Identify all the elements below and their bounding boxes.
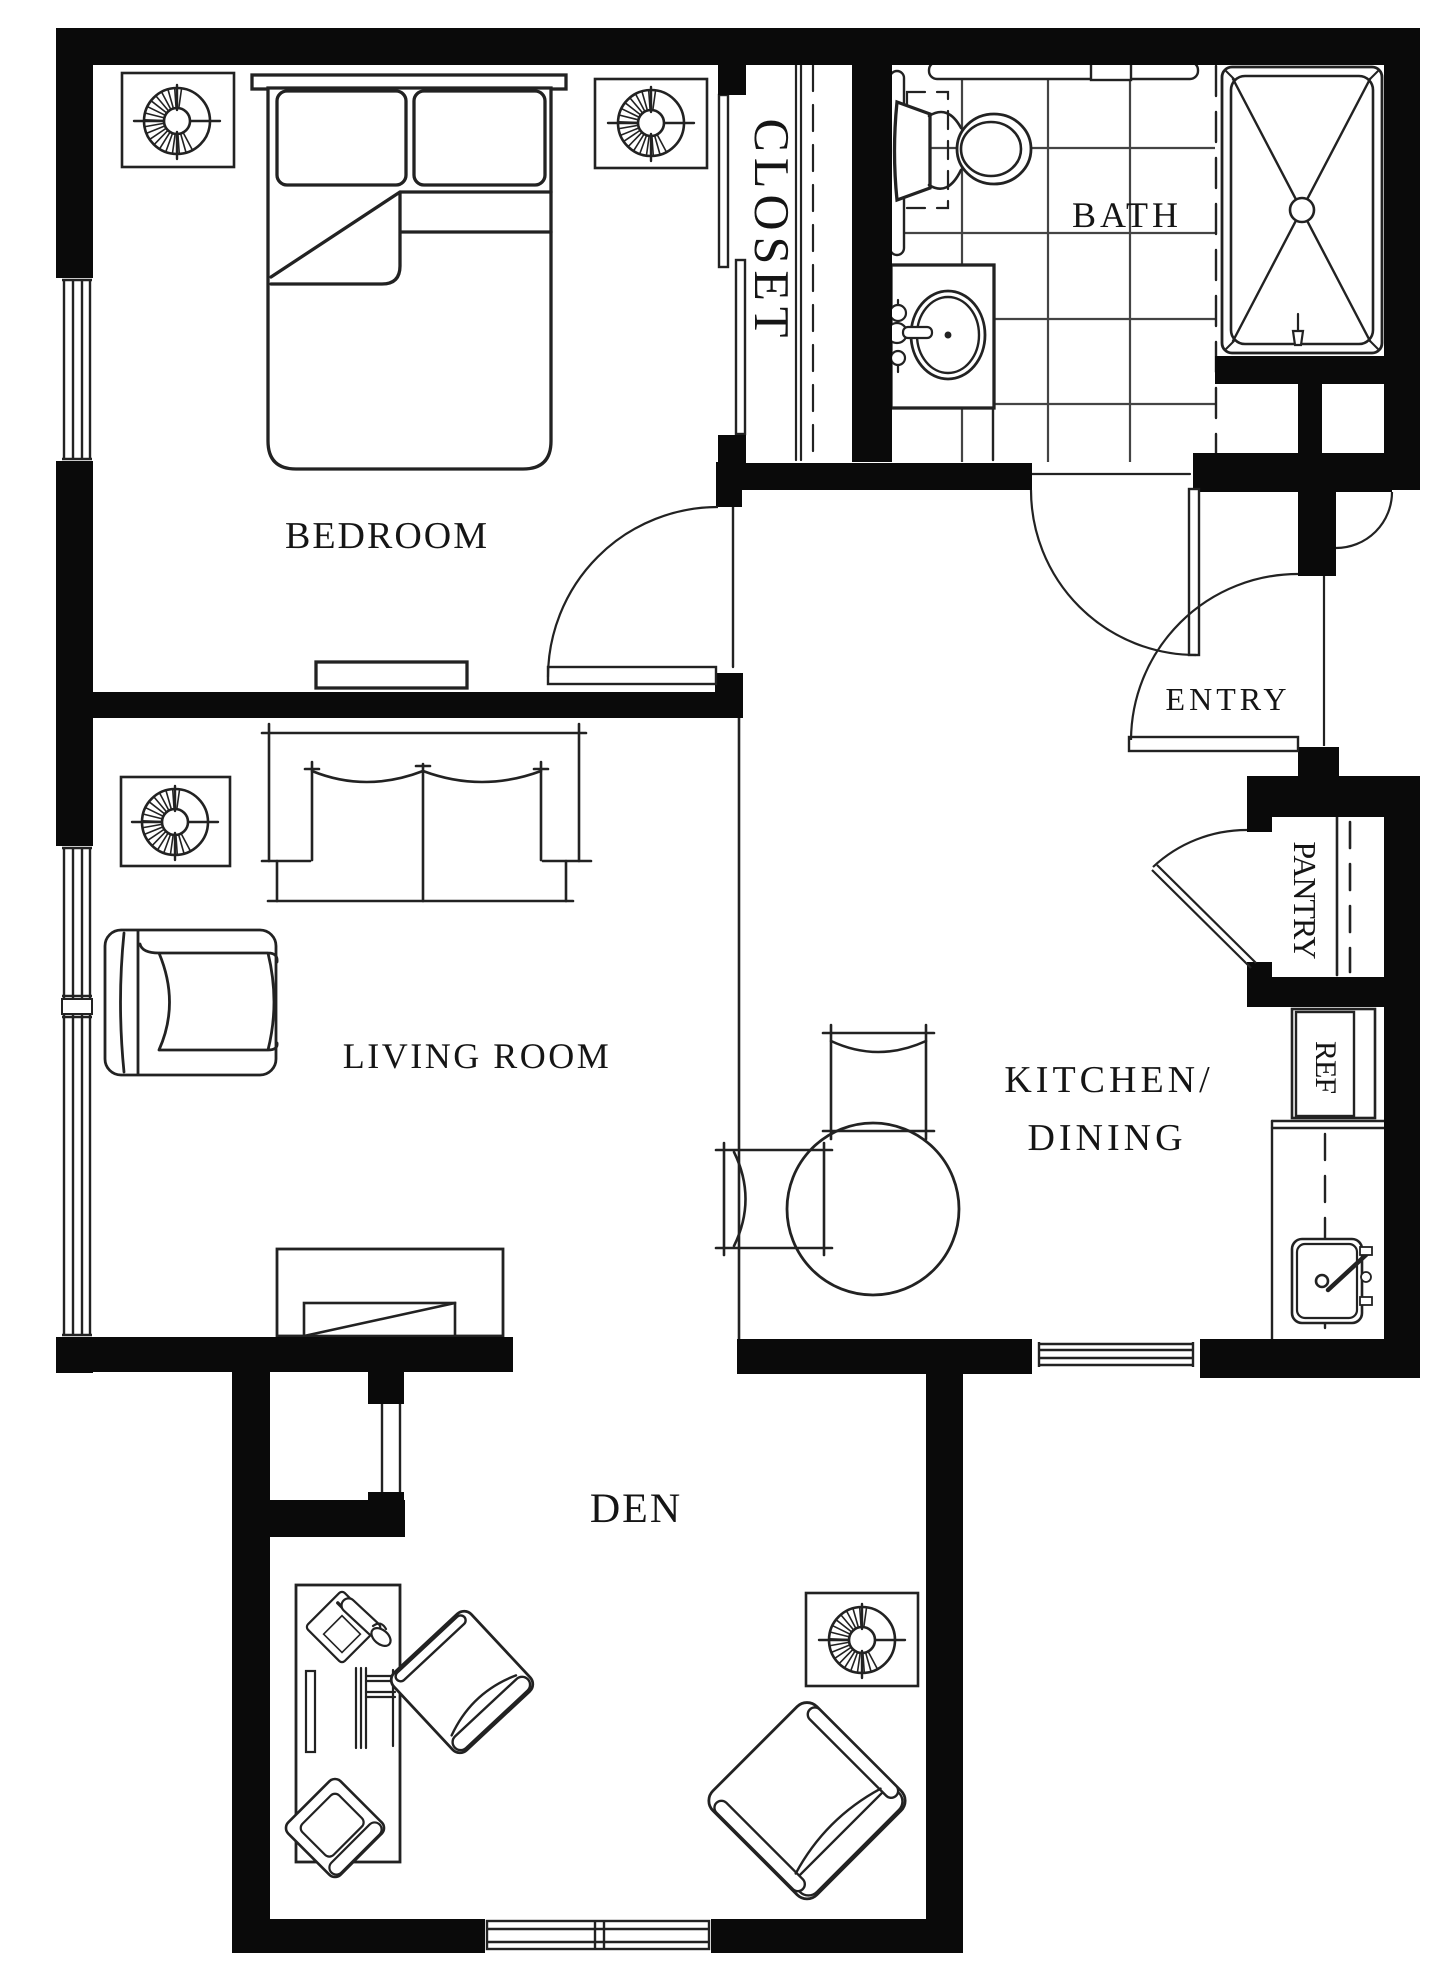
svg-text:KITCHEN/: KITCHEN/ [1004, 1059, 1213, 1101]
svg-text:BEDROOM: BEDROOM [285, 515, 489, 557]
svg-text:REF: REF [1309, 1041, 1342, 1093]
svg-text:DEN: DEN [590, 1486, 682, 1532]
svg-text:DINING: DINING [1027, 1117, 1186, 1159]
svg-text:ENTRY: ENTRY [1166, 681, 1291, 717]
svg-text:BATH: BATH [1072, 195, 1182, 235]
svg-text:LIVING ROOM: LIVING ROOM [343, 1036, 611, 1076]
svg-text:PANTRY: PANTRY [1287, 841, 1323, 959]
svg-text:CLOSET: CLOSET [744, 119, 800, 344]
